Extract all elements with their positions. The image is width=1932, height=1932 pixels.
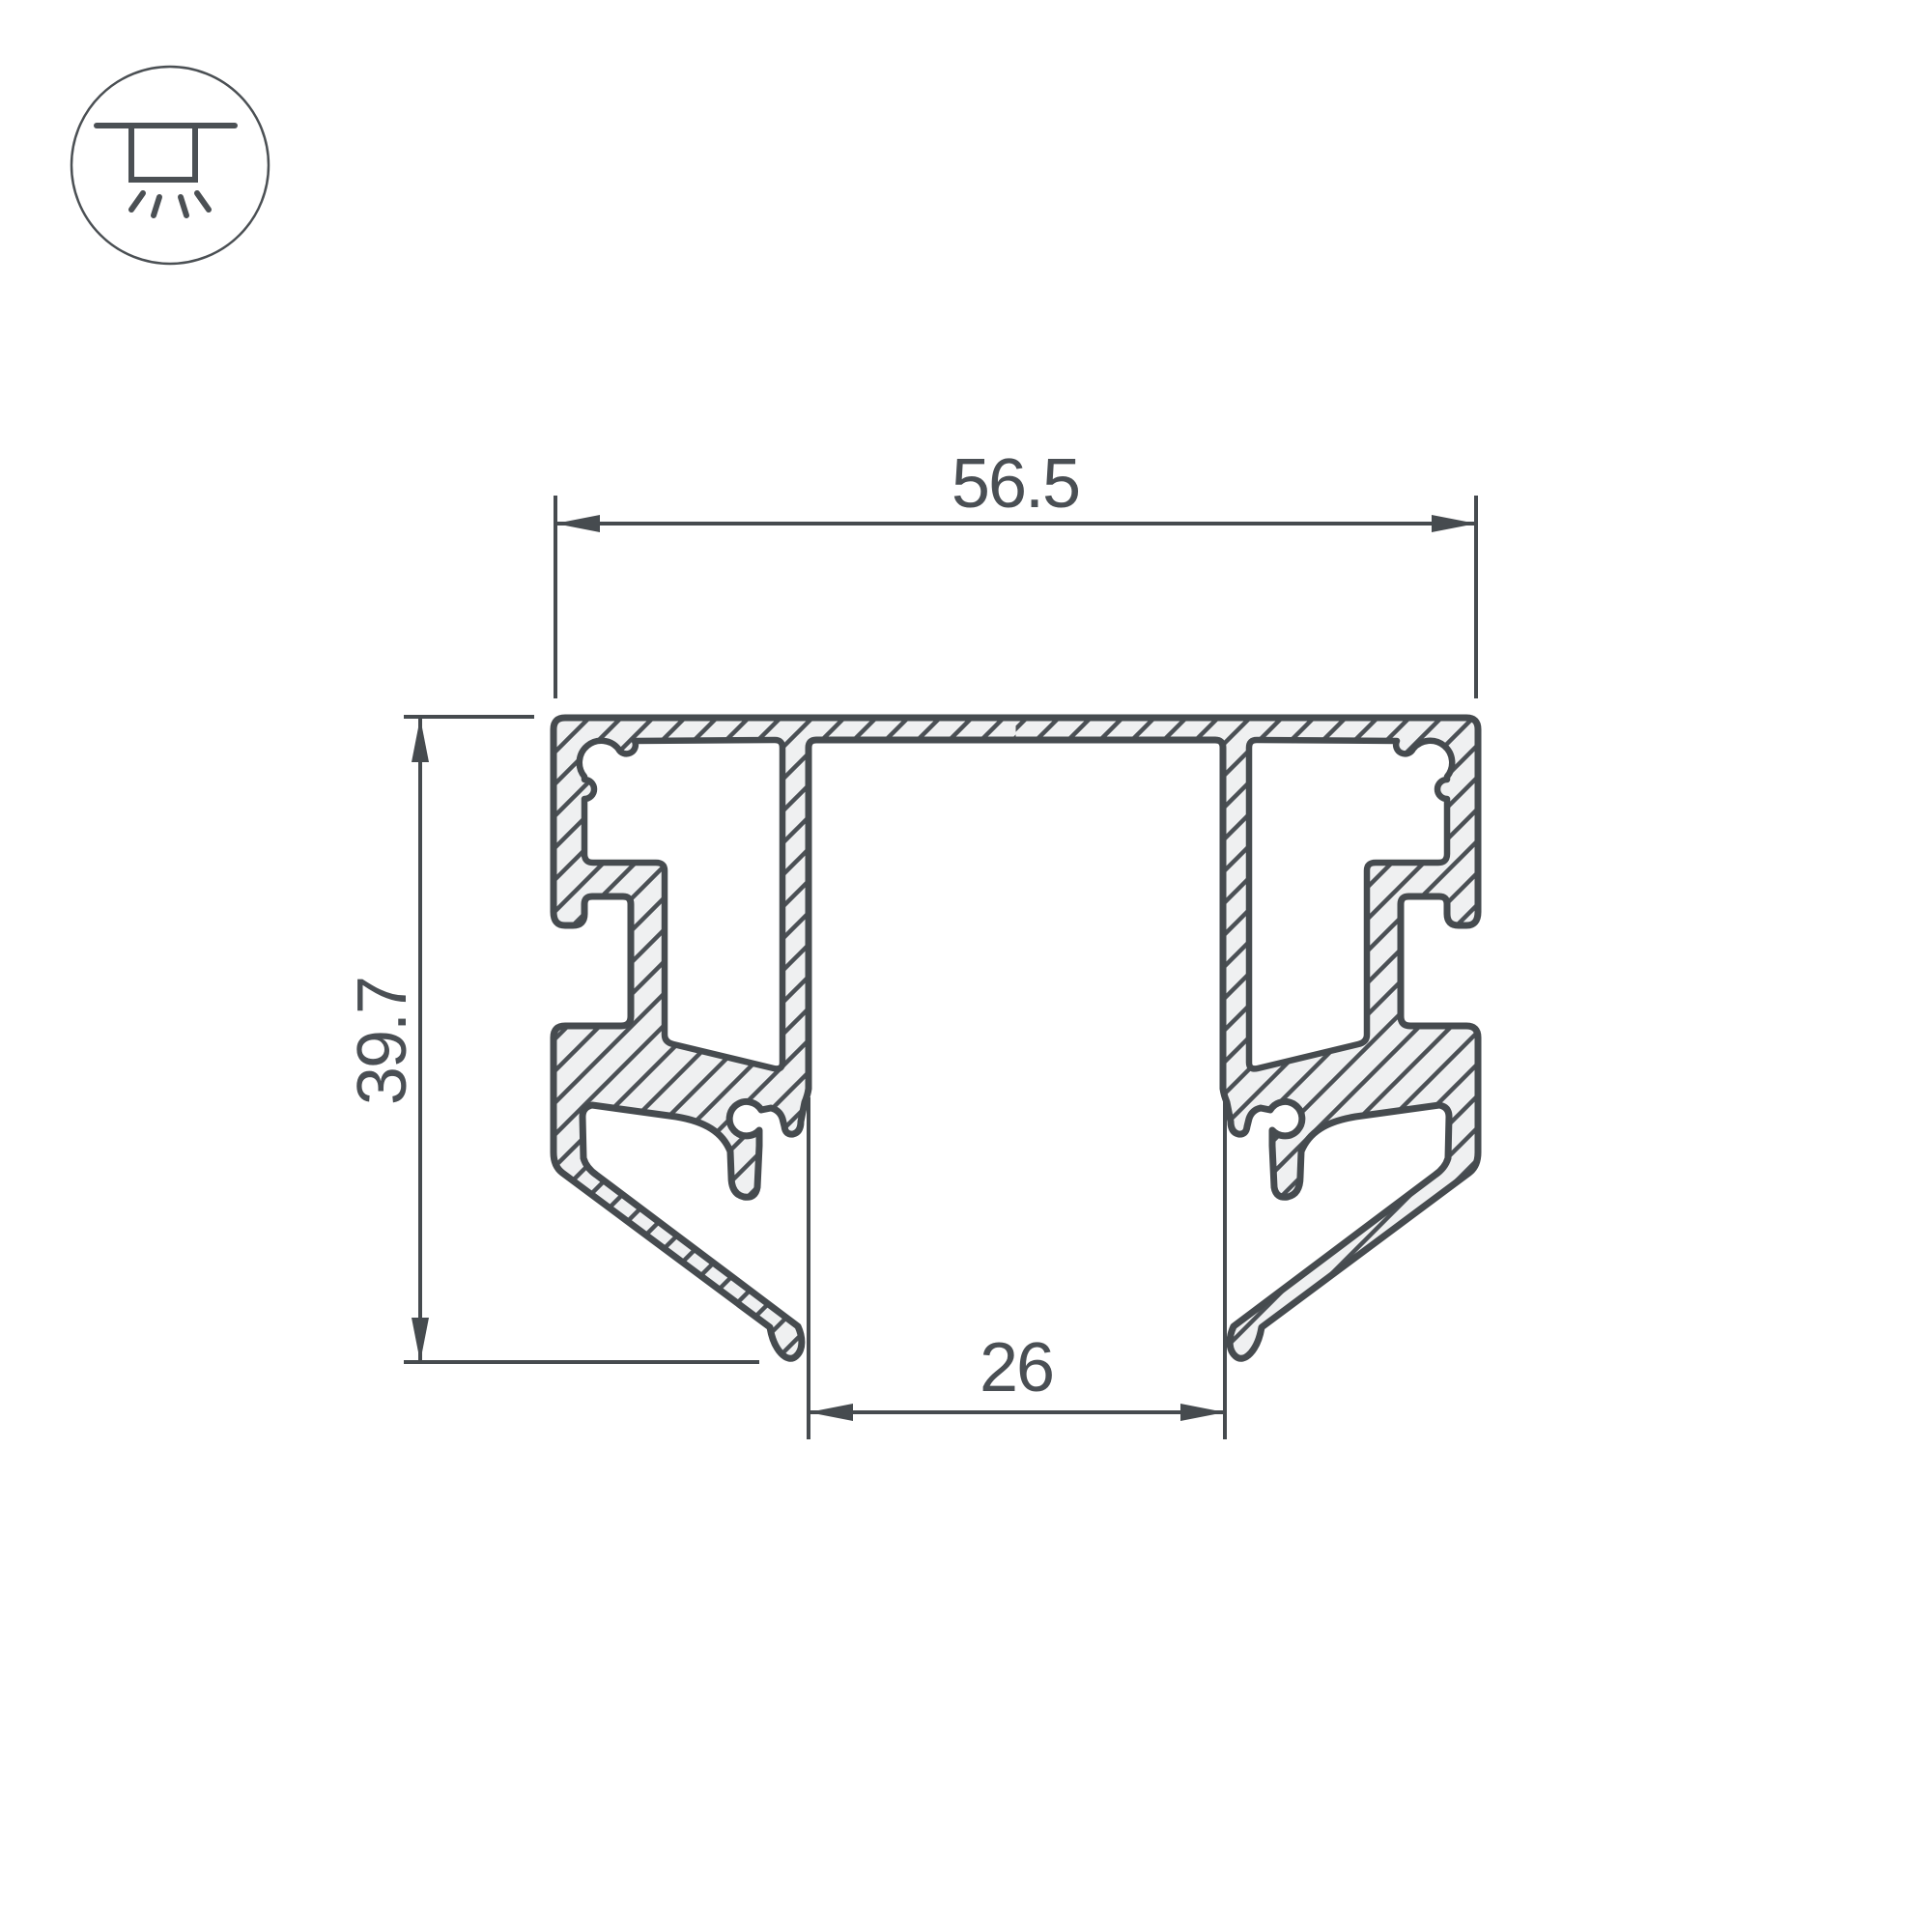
profile-left-chamber-cavity [580, 740, 782, 1068]
icon-fixture-box [131, 126, 195, 180]
technical-drawing-canvas: 56.5 39.7 26 [0, 0, 1932, 1932]
overall-height-value: 39.7 [344, 978, 421, 1105]
arrowhead-right [1432, 515, 1476, 532]
opening-width-value: 26 [980, 1329, 1053, 1406]
arrowhead-bottom [412, 1318, 429, 1362]
overall-width-value: 56.5 [952, 445, 1079, 523]
arrowhead-left [555, 515, 600, 532]
icon-circle [71, 67, 269, 264]
profile-cross-section [554, 718, 1478, 1358]
icon-light-rays [131, 193, 209, 215]
dimension-overall-width [555, 496, 1476, 698]
ceiling-recessed-light-icon [71, 67, 269, 264]
profile-right-chamber-cavity [1249, 740, 1452, 1068]
arrowhead-top [412, 718, 429, 762]
arrowhead-right [1180, 1404, 1225, 1421]
arrowhead-left [809, 1404, 853, 1421]
